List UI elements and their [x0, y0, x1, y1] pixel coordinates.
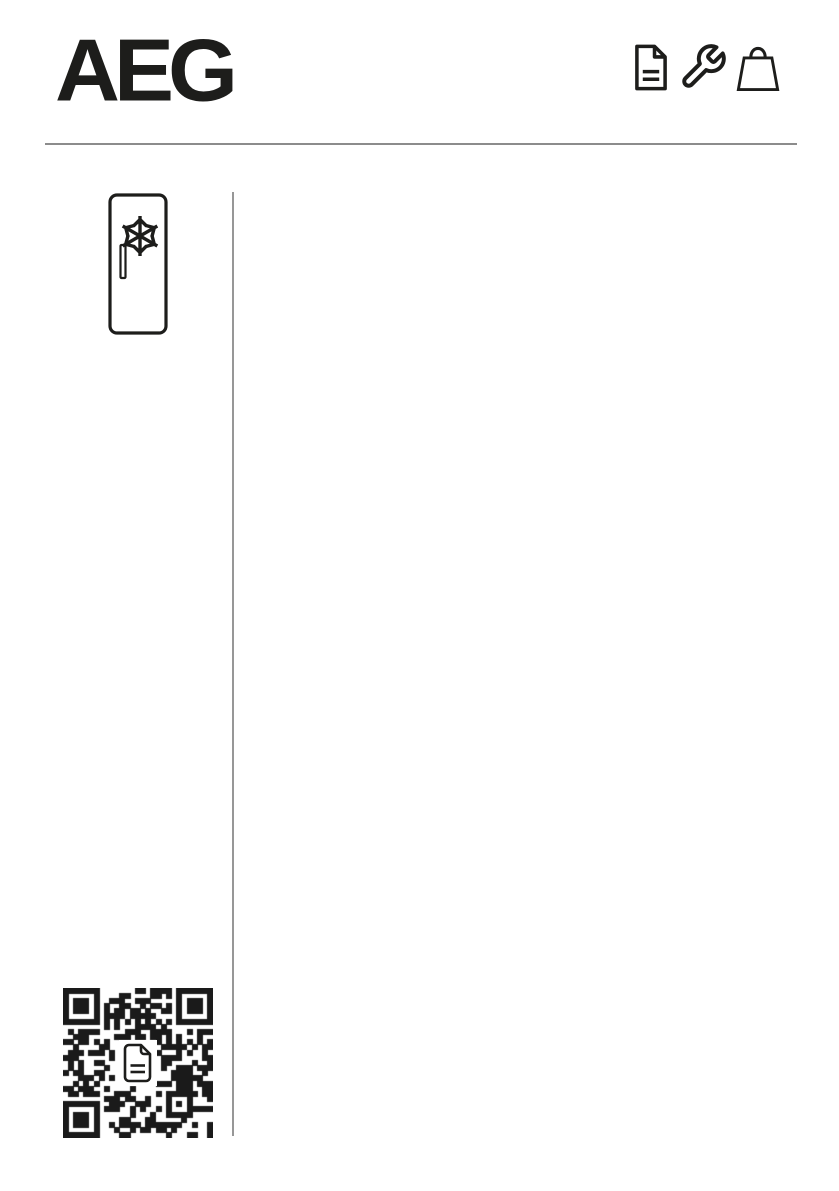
qr-code	[63, 988, 213, 1138]
freezer-icon	[108, 193, 168, 335]
document-icon	[631, 44, 671, 91]
manual-cover-page: AEG	[0, 0, 839, 1191]
content-area	[234, 192, 797, 1136]
document-icon	[119, 1040, 157, 1086]
header-divider	[45, 143, 797, 145]
header-icons	[631, 41, 781, 93]
shopping-bag-icon	[735, 42, 781, 92]
aeg-logo: AEG	[55, 27, 232, 115]
wrench-icon	[678, 41, 728, 93]
